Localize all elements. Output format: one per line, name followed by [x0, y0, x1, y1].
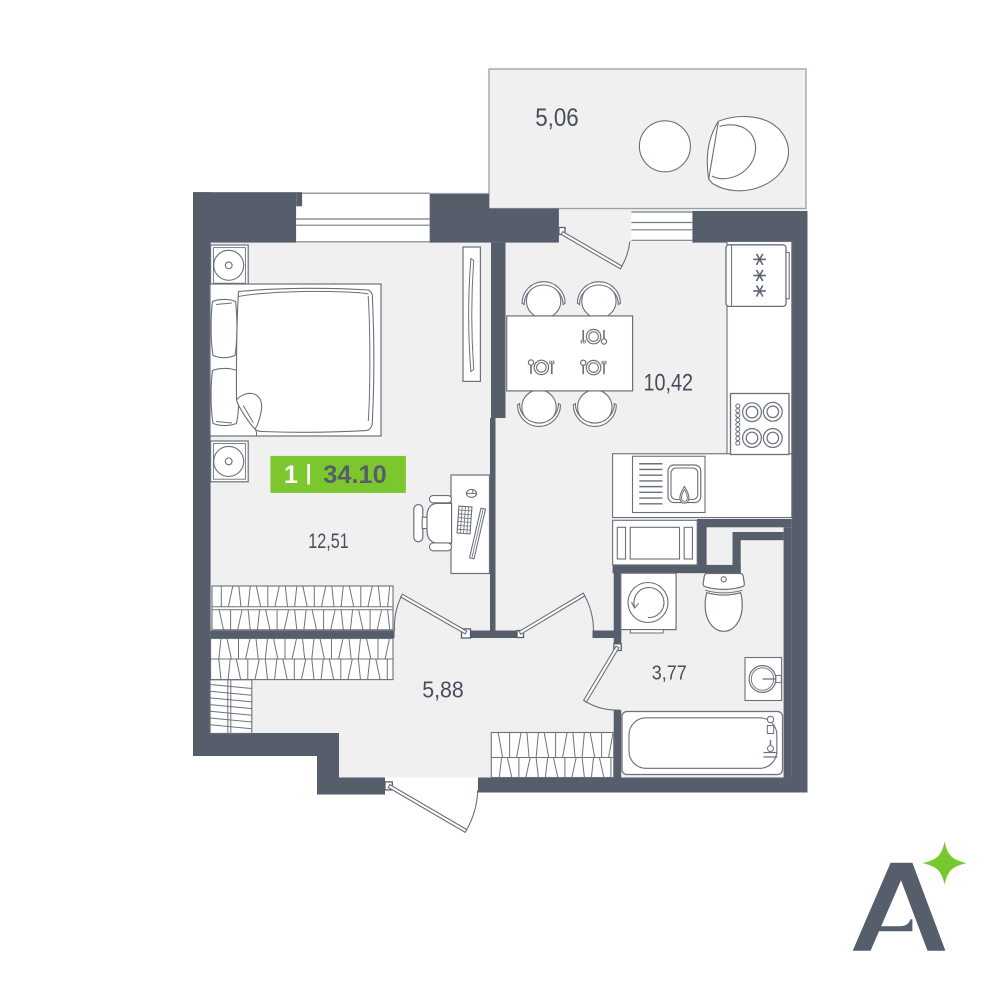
svg-text:1: 1	[284, 461, 298, 489]
svg-text:12,51: 12,51	[308, 529, 349, 553]
svg-text:34.10: 34.10	[323, 461, 387, 489]
svg-text:5,06: 5,06	[535, 104, 579, 132]
svg-text:3,77: 3,77	[652, 662, 687, 685]
svg-text:5,88: 5,88	[422, 676, 464, 702]
svg-text:10,42: 10,42	[644, 370, 694, 397]
